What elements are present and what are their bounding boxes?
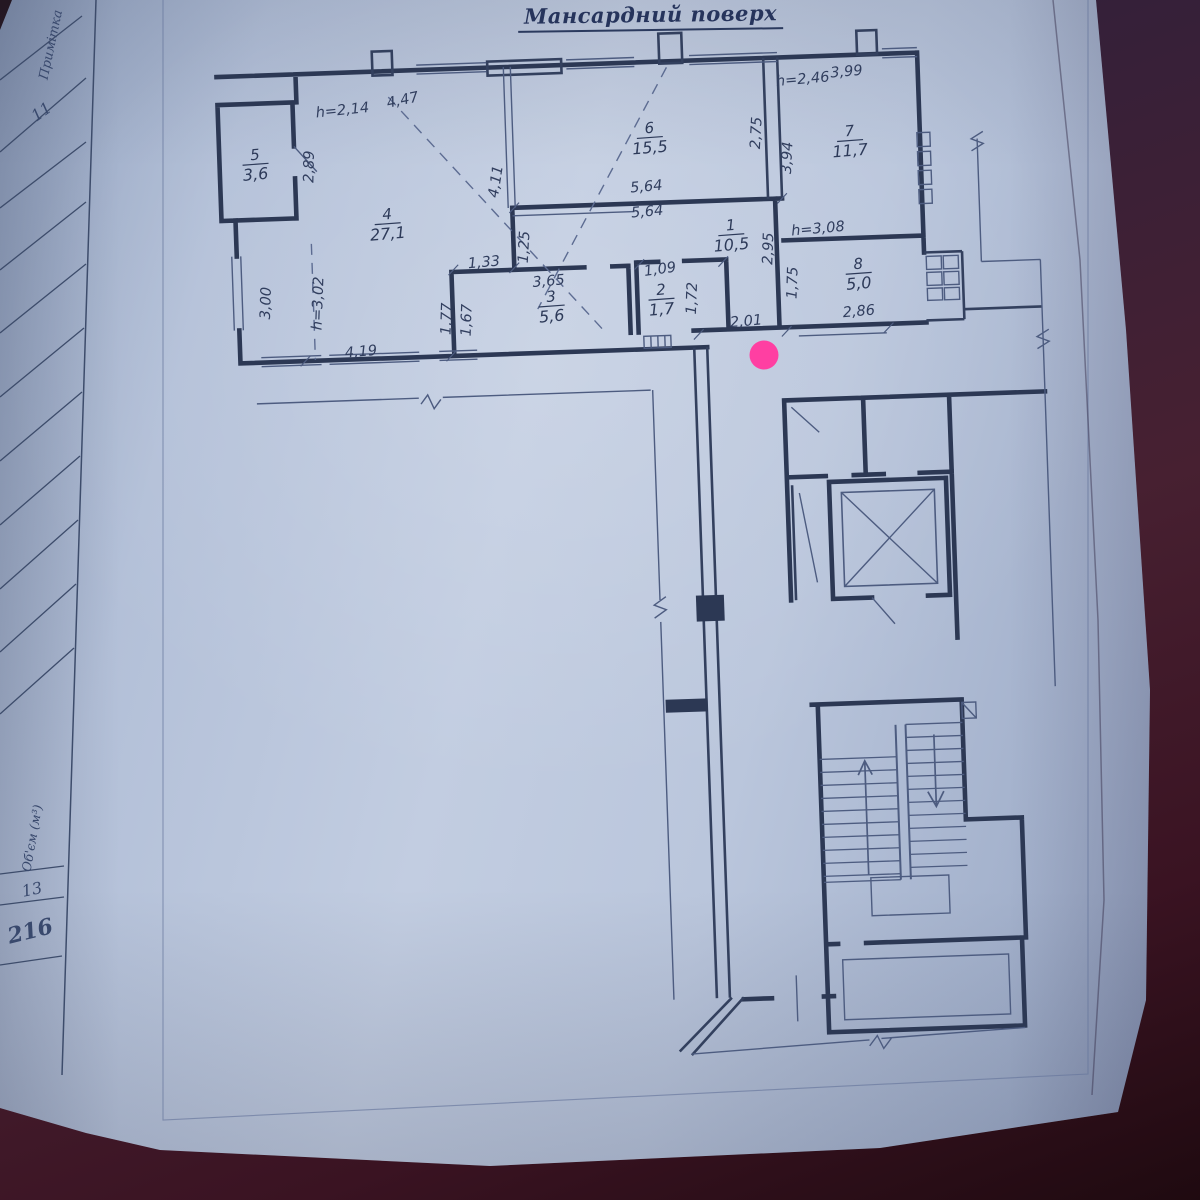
room-number: 1 — [725, 216, 736, 235]
dim-label: 2,01 — [729, 312, 763, 331]
dim-label: 1,09 — [643, 260, 677, 280]
dim-label: 1,25 — [516, 231, 534, 264]
room-number: 8 — [853, 254, 864, 273]
room-number: 3 — [546, 287, 557, 306]
dim-label: 4,47 — [385, 89, 421, 112]
room-number: 7 — [844, 122, 856, 141]
dim-label: h=2,14 — [315, 100, 370, 122]
corridor-column — [696, 595, 725, 622]
room-area: 10,5 — [713, 234, 750, 256]
bottom-room-inset — [843, 954, 1011, 1020]
dim-label: 5,64 — [630, 203, 664, 222]
room-label-2: 2 1,7 — [647, 280, 676, 320]
vent-shaft-boxes — [637, 131, 976, 729]
stair-landing — [871, 875, 950, 916]
chimney-block — [856, 30, 877, 55]
dim-label: 4,11 — [486, 164, 507, 198]
walls-medium — [371, 21, 1067, 1065]
walls-thick — [216, 49, 1067, 1053]
dim-label: h=3,02 — [310, 276, 328, 330]
room-area: 11,7 — [832, 139, 870, 161]
room-area: 27,1 — [369, 223, 406, 245]
room-number: 4 — [382, 205, 393, 224]
room-area: 3,6 — [242, 164, 269, 185]
dim-label: 2,95 — [760, 232, 777, 265]
click-marker — [750, 341, 779, 370]
room-area: 1,7 — [648, 299, 676, 320]
corridor-wall-stub — [665, 698, 707, 712]
room-label-3: 3 5,6 — [538, 287, 566, 327]
dim-label: 1,72 — [684, 282, 701, 315]
room-label-7: 7 11,7 — [831, 121, 870, 161]
dim-label: 3,94 — [779, 141, 797, 174]
plan-title: Мансардний поверх — [518, 0, 784, 33]
room-number: 6 — [644, 119, 655, 138]
photo-of-floorplan-page: { "page": { "title": "Мансардний поверх"… — [0, 0, 1200, 1200]
room-number: 5 — [249, 145, 260, 164]
page-edge-crease — [1053, 0, 1104, 1095]
dim-label: 2,86 — [842, 302, 876, 321]
dim-label: 3,00 — [258, 287, 275, 320]
room-label-8: 8 5,0 — [845, 254, 873, 294]
dim-label: 2,89 — [301, 150, 318, 183]
room-label-4: 4 27,1 — [368, 204, 406, 244]
elevator-shaft — [841, 489, 937, 586]
dim-label: 2,75 — [748, 116, 766, 149]
dim-label: 1,77 — [439, 302, 456, 336]
dim-label: 4,19 — [344, 343, 378, 362]
dim-label: h=2,46 — [775, 69, 830, 90]
room-area: 15,5 — [631, 136, 668, 158]
floor-plan-drawing: h=2,14 4,47 2,89 3,00 h=3,02 4,19 4,11 1… — [0, 0, 1200, 1200]
dim-label: 5,64 — [630, 178, 664, 197]
staircase — [819, 722, 968, 882]
dim-label: 3,99 — [830, 63, 864, 82]
room-number: 2 — [655, 280, 666, 299]
room-area: 5,6 — [538, 305, 565, 326]
elevator-cross-icon — [841, 489, 937, 586]
room-label-5: 5 3,6 — [241, 145, 269, 185]
dim-label: 1,75 — [784, 266, 801, 299]
room-label-1: 1 10,5 — [712, 215, 750, 255]
room-area: 5,0 — [845, 273, 872, 294]
dim-label: 1,33 — [467, 253, 501, 272]
stairs-down-arrow-icon — [926, 734, 945, 807]
door-leaves — [294, 126, 909, 1038]
stairs-up-arrow-icon — [858, 761, 876, 875]
dim-label: 1,67 — [459, 303, 476, 337]
